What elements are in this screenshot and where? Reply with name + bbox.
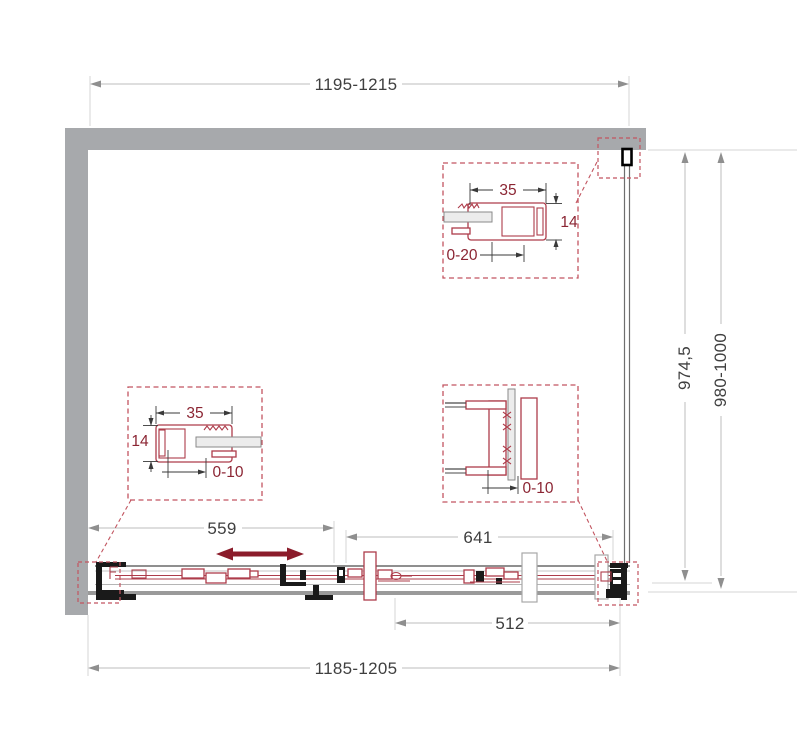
detail-source-boxes bbox=[78, 138, 640, 605]
glass-segment-label: 512 bbox=[495, 614, 524, 633]
door-rail-assembly bbox=[88, 552, 630, 602]
top-profile-adjust-label: 0-20 bbox=[446, 247, 477, 264]
overlap-adjust-label: 0-10 bbox=[522, 480, 553, 497]
left-segment-label: 559 bbox=[207, 519, 236, 538]
handle-post bbox=[364, 552, 376, 600]
detail-left-wall-profile: 35 14 0-10 bbox=[128, 387, 262, 500]
left-profile-adjust-label: 0-10 bbox=[212, 464, 243, 481]
fixed-side-panel bbox=[623, 149, 632, 563]
left-profile-width-label: 35 bbox=[186, 405, 203, 422]
fixed-glass-section bbox=[508, 389, 515, 480]
dimension-side-range: 980-1000 bbox=[711, 152, 730, 589]
top-profile-width-label: 35 bbox=[499, 182, 516, 199]
top-width-label: 1195-1215 bbox=[315, 75, 398, 94]
ceiling-bracket bbox=[623, 149, 632, 165]
dimension-door-segment: 641 bbox=[346, 528, 613, 547]
side-inner-label: 974,5 bbox=[675, 346, 694, 390]
dimension-bottom-width: 1185-1205 bbox=[88, 659, 620, 678]
dimension-side-inner: 974,5 bbox=[675, 152, 694, 581]
detail-top-wall-profile: 35 14 0-20 bbox=[443, 163, 578, 278]
left-wall bbox=[65, 128, 88, 615]
door-segment-label: 641 bbox=[463, 528, 492, 547]
bottom-width-label: 1185-1205 bbox=[315, 659, 398, 678]
slide-direction-arrow bbox=[216, 548, 304, 561]
dimension-glass-segment: 512 bbox=[395, 614, 620, 633]
left-profile-thickness-label: 14 bbox=[131, 433, 149, 450]
detail-panel-overlap: 0-10 bbox=[443, 385, 578, 502]
top-wall bbox=[65, 128, 646, 150]
dimension-left-segment: 559 bbox=[88, 519, 334, 538]
walls bbox=[65, 128, 646, 615]
glass-edge bbox=[196, 437, 261, 447]
shower-enclosure-plan-drawing: 1195-1215 559 641 512 1185-1205 974,5 bbox=[0, 0, 800, 755]
side-range-label: 980-1000 bbox=[711, 333, 730, 407]
dimension-top-width: 1195-1215 bbox=[90, 75, 629, 94]
glass-edge bbox=[444, 212, 492, 222]
top-profile-thickness-label: 14 bbox=[560, 214, 578, 231]
technical-drawing-canvas: 1195-1215 559 641 512 1185-1205 974,5 bbox=[0, 0, 800, 755]
